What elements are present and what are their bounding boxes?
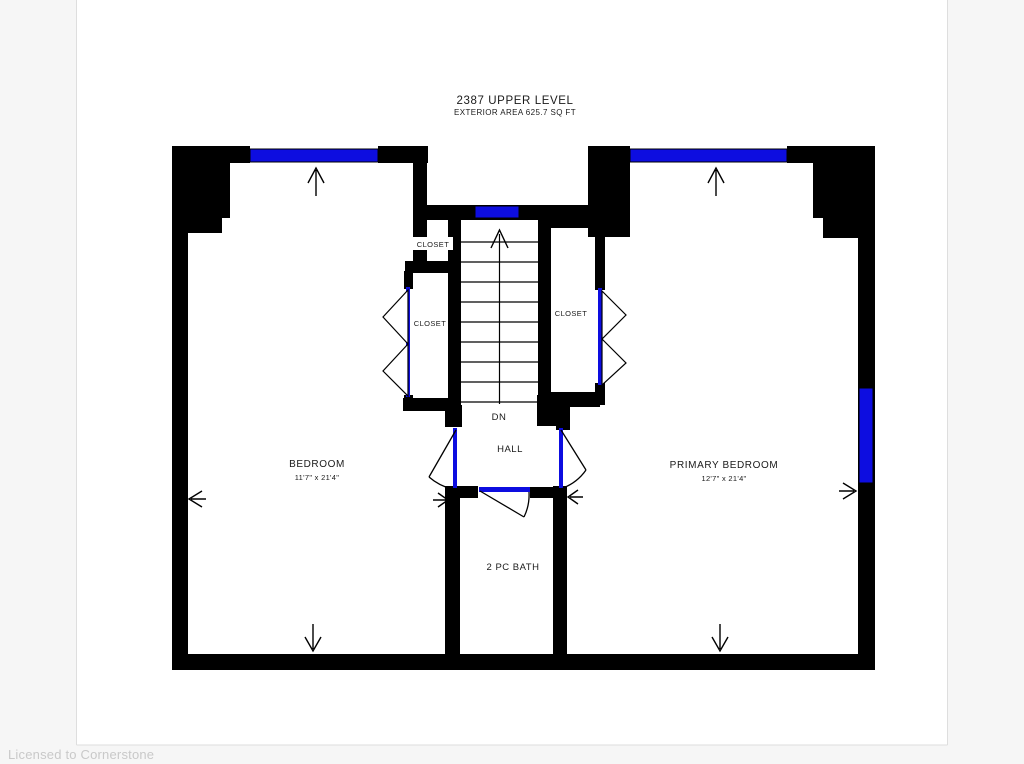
door-hall-bedroom (453, 428, 457, 488)
window-bedroom-top (250, 149, 378, 162)
bath-label: 2 PC BATH (487, 562, 540, 573)
wall-top-b (378, 146, 428, 163)
hall-label: HALL (497, 444, 523, 455)
window-stair-landing (475, 206, 519, 218)
wall-bottom (172, 654, 875, 670)
window-primary-top (630, 149, 787, 162)
wall-closet-right-top (540, 210, 600, 228)
wall-top-a (188, 146, 250, 163)
closet-right-label: CLOSET (555, 309, 587, 318)
wall-closet-left-cap-upper (404, 271, 413, 289)
door-hall-primary (559, 428, 563, 488)
wall-closet-right-bottom (540, 392, 600, 407)
wall-bath-right (553, 486, 567, 654)
stairs-dn-label: DN (492, 412, 507, 423)
bedroom-label: BEDROOM (289, 459, 345, 470)
door-bath (479, 487, 530, 492)
closet-left-label: CLOSET (414, 319, 446, 328)
wall-bath-right-stub (530, 487, 567, 498)
primary-bedroom-dims: 12'7" x 21'4" (701, 474, 746, 483)
wall-stair-right (538, 210, 551, 397)
floorplan-canvas: 2387 UPPER LEVEL EXTERIOR AREA 625.7 SQ … (0, 0, 1024, 764)
license-watermark: Licensed to Cornerstone (8, 747, 154, 762)
bedroom-dims: 11'7" x 21'4" (295, 473, 340, 482)
wall-top-c (787, 146, 817, 163)
wall-corner-top-right-step (823, 218, 860, 238)
wall-stub-below-closet (556, 405, 570, 430)
closet-top-label: CLOSET (417, 240, 449, 249)
primary-bedroom-label: PRIMARY BEDROOM (670, 460, 779, 471)
plan-subtitle: EXTERIOR AREA 625.7 SQ FT (454, 108, 576, 117)
window-primary-right (859, 388, 873, 483)
wall-corner-top-left-step (176, 218, 222, 233)
wall-closet-right-side-upper (595, 228, 605, 290)
wall-closet-left-bottom (403, 398, 461, 411)
wall-bath-left (445, 486, 460, 654)
plan-title: 2387 UPPER LEVEL (457, 95, 574, 107)
wall-closet-column-left (413, 163, 427, 273)
